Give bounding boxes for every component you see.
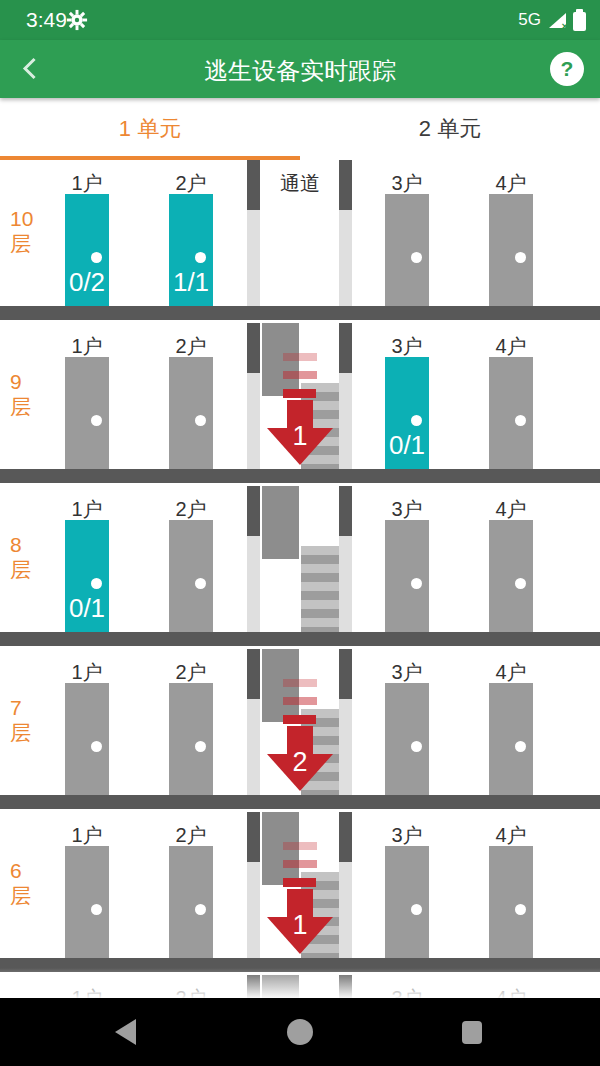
door-knob-dot <box>411 904 422 915</box>
floor-row-6: 6 层 1户 2户 3户 4户 1 <box>0 812 600 975</box>
door-knob-dot <box>515 415 526 426</box>
recents-square-icon[interactable] <box>462 1021 482 1044</box>
floor-slab <box>0 795 600 809</box>
door-knob-dot <box>515 578 526 589</box>
back-triangle-icon[interactable] <box>115 1019 136 1045</box>
android-nav-bar <box>0 998 600 1066</box>
status-right-icons: 5G × <box>518 0 586 40</box>
stair-landing-block <box>262 649 299 722</box>
floor-suffix: 层 <box>10 557 52 582</box>
stair-steps <box>301 872 339 958</box>
door-9-3[interactable]: 0/1 <box>385 357 429 469</box>
battery-icon <box>573 12 586 31</box>
door-knob-dot <box>515 252 526 263</box>
corridor-wall-left <box>247 160 260 306</box>
door-knob-dot <box>195 578 206 589</box>
stair-landing-block <box>262 975 299 998</box>
door-7-4[interactable] <box>489 683 533 795</box>
door-knob-dot <box>91 252 102 263</box>
unit-header-1: 1户 <box>57 496 117 523</box>
floor-number: 7 <box>10 695 52 720</box>
corridor-wall-right <box>339 649 352 795</box>
door-knob-dot <box>91 415 102 426</box>
door-knob-dot <box>195 252 206 263</box>
door-6-3[interactable] <box>385 846 429 958</box>
corridor-wall-right <box>339 323 352 469</box>
status-time: 3:49 <box>26 8 67 32</box>
unit-header-2: 2户 <box>161 985 221 998</box>
door-10-1[interactable]: 0/2 <box>65 194 109 306</box>
door-knob-dot <box>91 904 102 915</box>
door-9-1[interactable] <box>65 357 109 469</box>
unit-header-4: 4户 <box>481 496 541 523</box>
door-10-4[interactable] <box>489 194 533 306</box>
unit-header-3: 3户 <box>377 333 437 360</box>
door-6-1[interactable] <box>65 846 109 958</box>
stair-steps <box>301 383 339 469</box>
unit-header-1: 1户 <box>57 170 117 197</box>
gear-icon <box>66 9 88 31</box>
unit-header-4: 4户 <box>481 985 541 998</box>
unit-header-2: 2户 <box>161 496 221 523</box>
floor-row-7: 7 层 1户 2户 3户 4户 2 <box>0 649 600 812</box>
floor-label-8: 8 层 <box>10 532 52 582</box>
unit-header-3: 3户 <box>377 496 437 523</box>
floor-number: 10 <box>10 206 52 231</box>
door-9-2[interactable] <box>169 357 213 469</box>
stair-steps <box>301 546 339 632</box>
floor-slab <box>0 469 600 483</box>
unit-header-3: 3户 <box>377 985 437 998</box>
door-7-1[interactable] <box>65 683 109 795</box>
door-knob-dot <box>411 252 422 263</box>
door-knob-dot <box>411 741 422 752</box>
door-knob-dot <box>515 741 526 752</box>
unit-header-2: 2户 <box>161 333 221 360</box>
unit-header-1: 1户 <box>57 659 117 686</box>
floor-suffix: 层 <box>10 394 52 419</box>
tab-unit-2[interactable]: 2 单元 <box>300 98 600 160</box>
door-count: 0/2 <box>65 267 109 298</box>
app-bar: 逃生设备实时跟踪 ? <box>0 40 600 98</box>
door-knob-dot <box>411 578 422 589</box>
unit-header-4: 4户 <box>481 333 541 360</box>
door-7-2[interactable] <box>169 683 213 795</box>
floor-suffix: 层 <box>10 231 52 256</box>
door-6-2[interactable] <box>169 846 213 958</box>
door-8-4[interactable] <box>489 520 533 632</box>
door-knob-dot <box>195 415 206 426</box>
floor-number: 6 <box>10 858 52 883</box>
unit-header-4: 4户 <box>481 170 541 197</box>
floor-row-9: 9 层 1户 2户 3户 4户 1 0/1 <box>0 323 600 486</box>
building-cross-section: 10 层 1户 2户 通道 3户 4户 0/2 1/1 <box>0 160 600 998</box>
unit-header-2: 2户 <box>161 822 221 849</box>
network-type-label: 5G <box>518 10 541 30</box>
app-screen: 3:49 5G × <box>0 0 600 1066</box>
home-circle-icon[interactable] <box>287 1019 313 1045</box>
floor-number: 8 <box>10 532 52 557</box>
floor-row-8: 8 层 1户 2户 3户 4户 0/1 <box>0 486 600 649</box>
unit-header-2: 2户 <box>161 170 221 197</box>
door-10-2[interactable]: 1/1 <box>169 194 213 306</box>
tab-unit-1[interactable]: 1 单元 <box>0 98 300 160</box>
floor-label-10: 10 层 <box>10 206 52 256</box>
door-knob-dot <box>91 578 102 589</box>
floor-slab <box>0 306 600 320</box>
floor-number: 9 <box>10 369 52 394</box>
floor-suffix: 层 <box>10 883 52 908</box>
door-8-2[interactable] <box>169 520 213 632</box>
door-count: 0/1 <box>65 593 109 624</box>
corridor-wall-right <box>339 812 352 958</box>
unit-header-2: 2户 <box>161 659 221 686</box>
unit-header-3: 3户 <box>377 659 437 686</box>
corridor-wall-right <box>339 160 352 306</box>
unit-header-3: 3户 <box>377 822 437 849</box>
unit-tab-bar: 1 单元 2 单元 <box>0 98 600 160</box>
corridor-wall-left <box>247 812 260 958</box>
stair-landing-block <box>262 812 299 885</box>
floor-label-6: 6 层 <box>10 858 52 908</box>
door-8-3[interactable] <box>385 520 429 632</box>
door-9-4[interactable] <box>489 357 533 469</box>
door-knob-dot <box>195 904 206 915</box>
unit-header-4: 4户 <box>481 822 541 849</box>
door-6-4[interactable] <box>489 846 533 958</box>
floor-label-9: 9 层 <box>10 369 52 419</box>
unit-header-1: 1户 <box>57 333 117 360</box>
help-icon[interactable]: ? <box>550 52 584 86</box>
floor-row-5-partial: 1户 2户 3户 4户 <box>0 975 600 998</box>
floor-suffix: 层 <box>10 720 52 745</box>
floor-slab <box>0 958 600 972</box>
stair-landing-block <box>262 323 299 396</box>
status-bar: 3:49 5G × <box>0 0 600 40</box>
unit-header-1: 1户 <box>57 985 117 998</box>
door-knob-dot <box>515 904 526 915</box>
signal-icon: × <box>548 13 566 28</box>
page-title: 逃生设备实时跟踪 <box>0 55 600 87</box>
stair-steps <box>301 709 339 795</box>
corridor-wall-left <box>247 649 260 795</box>
door-10-3[interactable] <box>385 194 429 306</box>
corridor-label: 通道 <box>258 170 342 197</box>
corridor-wall-left <box>247 323 260 469</box>
corridor-wall-left <box>247 975 260 998</box>
door-knob-dot <box>91 741 102 752</box>
door-count: 1/1 <box>169 267 213 298</box>
door-7-3[interactable] <box>385 683 429 795</box>
unit-header-3: 3户 <box>377 170 437 197</box>
corridor-wall-right <box>339 975 352 998</box>
corridor-wall-right <box>339 486 352 632</box>
floor-label-7: 7 层 <box>10 695 52 745</box>
unit-header-4: 4户 <box>481 659 541 686</box>
door-count: 0/1 <box>385 430 429 461</box>
floor-slab <box>0 632 600 646</box>
stair-landing-block <box>262 486 299 559</box>
floor-row-10: 10 层 1户 2户 通道 3户 4户 0/2 1/1 <box>0 160 600 323</box>
unit-header-1: 1户 <box>57 822 117 849</box>
corridor-wall-left <box>247 486 260 632</box>
door-8-1[interactable]: 0/1 <box>65 520 109 632</box>
door-knob-dot <box>195 741 206 752</box>
door-knob-dot <box>411 415 422 426</box>
